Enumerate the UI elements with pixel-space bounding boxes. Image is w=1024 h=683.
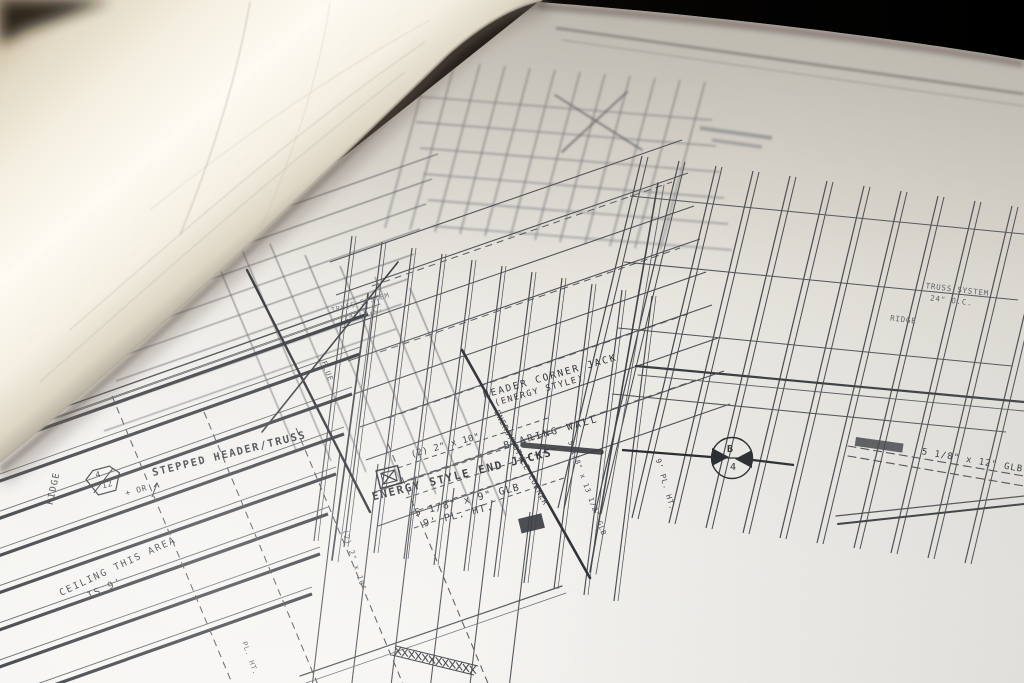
blueprint-photo: HEADER CORNER JACK (ENERGY STYLE) BEARIN… (0, 0, 1024, 683)
blueprint-drawing: HEADER CORNER JACK (ENERGY STYLE) BEARIN… (0, 0, 1024, 683)
